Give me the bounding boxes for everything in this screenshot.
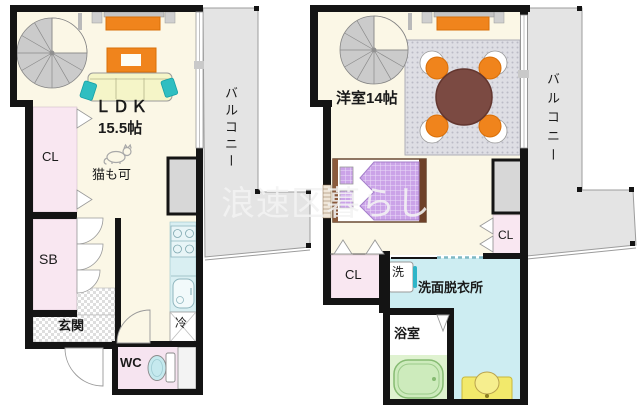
toilet-icon (148, 353, 175, 382)
closet-right-label: CL (498, 229, 513, 241)
railing-post (630, 241, 635, 246)
closet-label-left-unit: CL (42, 150, 59, 163)
bathtub-icon (390, 355, 447, 401)
sofa-icon (80, 73, 179, 101)
left-balcony (203, 6, 311, 260)
railing-post (254, 6, 259, 11)
washer-label: 洗 (392, 266, 404, 278)
coffee-table-icon (107, 48, 156, 72)
wall-vent-hatch (323, 185, 331, 218)
wc-side-space (178, 347, 196, 389)
railing-post (577, 6, 582, 11)
ldk-label: ＬＤＫ (95, 100, 149, 116)
balcony-label-right: バルコニー (546, 72, 559, 167)
ldk-size-label: 15.5帖 (98, 121, 142, 136)
kitchen-counter (170, 222, 196, 312)
spiral-staircase-right-icon (340, 16, 408, 84)
wc-label: WC (120, 356, 142, 369)
railing-post (255, 189, 260, 194)
pipe-space-box (168, 158, 199, 214)
pillow-icon (340, 191, 353, 208)
right-unit (310, 5, 636, 405)
railing-post (577, 187, 582, 192)
spiral-staircase-left-icon (17, 18, 87, 88)
shoebox-label: SB (39, 252, 58, 266)
entrance-door-arc (65, 348, 103, 386)
railing-post (306, 243, 311, 248)
railing-post (629, 187, 634, 192)
left-unit (10, 5, 311, 395)
floorplan-graphic (0, 0, 640, 405)
bed-icon (333, 159, 426, 222)
bathroom-label: 浴室 (394, 327, 420, 340)
railing-post (306, 189, 311, 194)
balcony-label-left: バルコニー (224, 86, 237, 171)
kitchen-stove-icon (171, 226, 196, 257)
pillow-icon (340, 167, 353, 184)
entrance-label: 玄関 (58, 319, 84, 332)
western-room-label: 洋室14帖 (336, 91, 398, 106)
vanity-sink-icon (462, 372, 512, 402)
kitchen-sink-icon (173, 279, 194, 308)
right-balcony (527, 6, 636, 259)
floorplan-canvas: ＬＤＫ 15.5帖 猫も可 CL SB 玄関 WC 冷 バルコニー 洋室14帖 … (0, 0, 640, 405)
pet-note-label: 猫も可 (92, 168, 131, 181)
fridge-label: 冷 (175, 317, 187, 329)
closet-left-label: CL (345, 268, 362, 281)
washroom-label: 洗面脱衣所 (418, 281, 483, 294)
round-table-icon (436, 69, 492, 125)
